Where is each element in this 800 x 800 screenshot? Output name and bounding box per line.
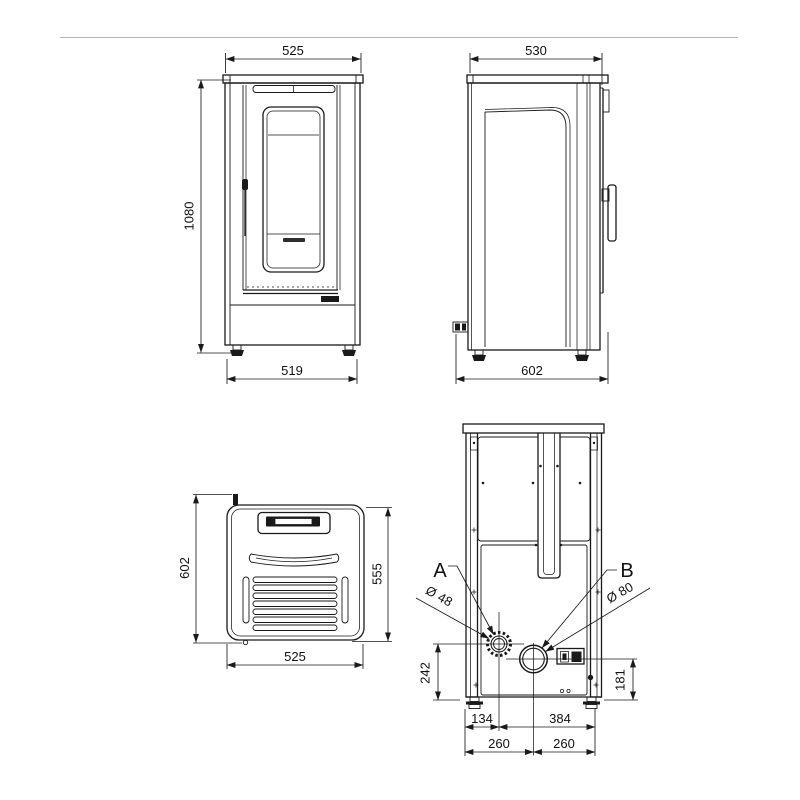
dim-center-right: 260 xyxy=(553,736,575,751)
dim-outlet-b-height: 181 xyxy=(613,669,628,691)
front-view: 525 1080 519 xyxy=(182,43,364,384)
drain-stub xyxy=(453,322,468,332)
brand-label xyxy=(283,238,305,242)
dim-outlet-b-diameter: Ø 80 xyxy=(604,579,636,606)
door-handle-stub xyxy=(233,494,238,505)
rear-column-right xyxy=(591,433,602,697)
leveling-foot xyxy=(466,697,483,709)
dim-center-left: 260 xyxy=(488,736,510,751)
rating-label xyxy=(321,296,339,302)
dim-outlet-a-height: 242 xyxy=(418,662,433,684)
top-plate xyxy=(463,424,604,433)
back-panel-upper xyxy=(478,437,590,541)
label-outlet-a: A xyxy=(433,560,447,582)
dim-front-base-width: 519 xyxy=(281,363,303,378)
stove-dimension-drawing: 525 1080 519 xyxy=(0,0,800,800)
top-view: 602 555 525 xyxy=(177,494,392,669)
cable-grommet xyxy=(588,675,593,680)
rear-column-left xyxy=(466,433,478,697)
dim-top-width: 525 xyxy=(284,649,306,664)
dim-top-depth-left: 602 xyxy=(177,557,192,579)
leveling-foot xyxy=(472,350,486,361)
dim-side-top-depth: 530 xyxy=(525,43,547,58)
rear-view: A B Ø 48 Ø 80 242 181 134 384 260 260 xyxy=(416,424,650,756)
air-grille xyxy=(243,577,348,631)
top-plate xyxy=(467,75,608,83)
flue-channel xyxy=(538,433,560,578)
dim-top-depth-right: 555 xyxy=(370,563,385,585)
side-view: 530 602 xyxy=(453,43,616,384)
dim-outlet-a-diameter: Ø 48 xyxy=(423,583,455,610)
top-vent xyxy=(253,86,335,93)
dim-front-height: 1080 xyxy=(182,202,197,231)
dim-side-base-depth: 602 xyxy=(521,363,543,378)
door-glass xyxy=(263,107,324,272)
door-pin xyxy=(243,640,247,644)
leveling-foot xyxy=(230,345,244,356)
top-plate xyxy=(223,75,363,83)
control-panel-display xyxy=(258,513,330,534)
side-panel-trim xyxy=(485,110,566,347)
leveling-foot xyxy=(342,345,356,356)
dim-outlet-a-offset: 134 xyxy=(471,711,493,726)
dim-outlet-a-span: 384 xyxy=(549,711,571,726)
leveling-foot xyxy=(583,697,600,709)
door-handle xyxy=(242,179,248,190)
dim-front-top-width: 525 xyxy=(282,43,304,58)
technical-drawing-page: 525 1080 519 xyxy=(0,0,800,800)
stove-body xyxy=(468,83,600,350)
lid-handle xyxy=(249,554,339,566)
leveling-foot xyxy=(575,350,589,361)
